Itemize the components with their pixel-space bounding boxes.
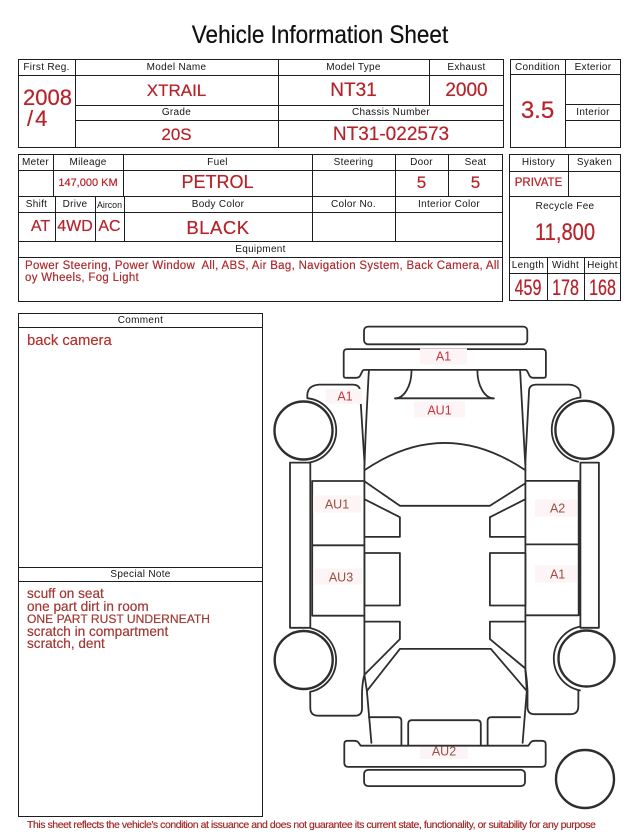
svg-text:AU1: AU1	[427, 404, 451, 418]
svg-text:A1: A1	[337, 390, 352, 404]
svg-text:A1: A1	[436, 350, 451, 364]
svg-text:A1: A1	[550, 568, 565, 582]
svg-text:AU2: AU2	[432, 745, 456, 759]
svg-text:AU3: AU3	[329, 571, 353, 585]
svg-text:A2: A2	[550, 502, 565, 516]
svg-text:AU1: AU1	[325, 498, 349, 512]
